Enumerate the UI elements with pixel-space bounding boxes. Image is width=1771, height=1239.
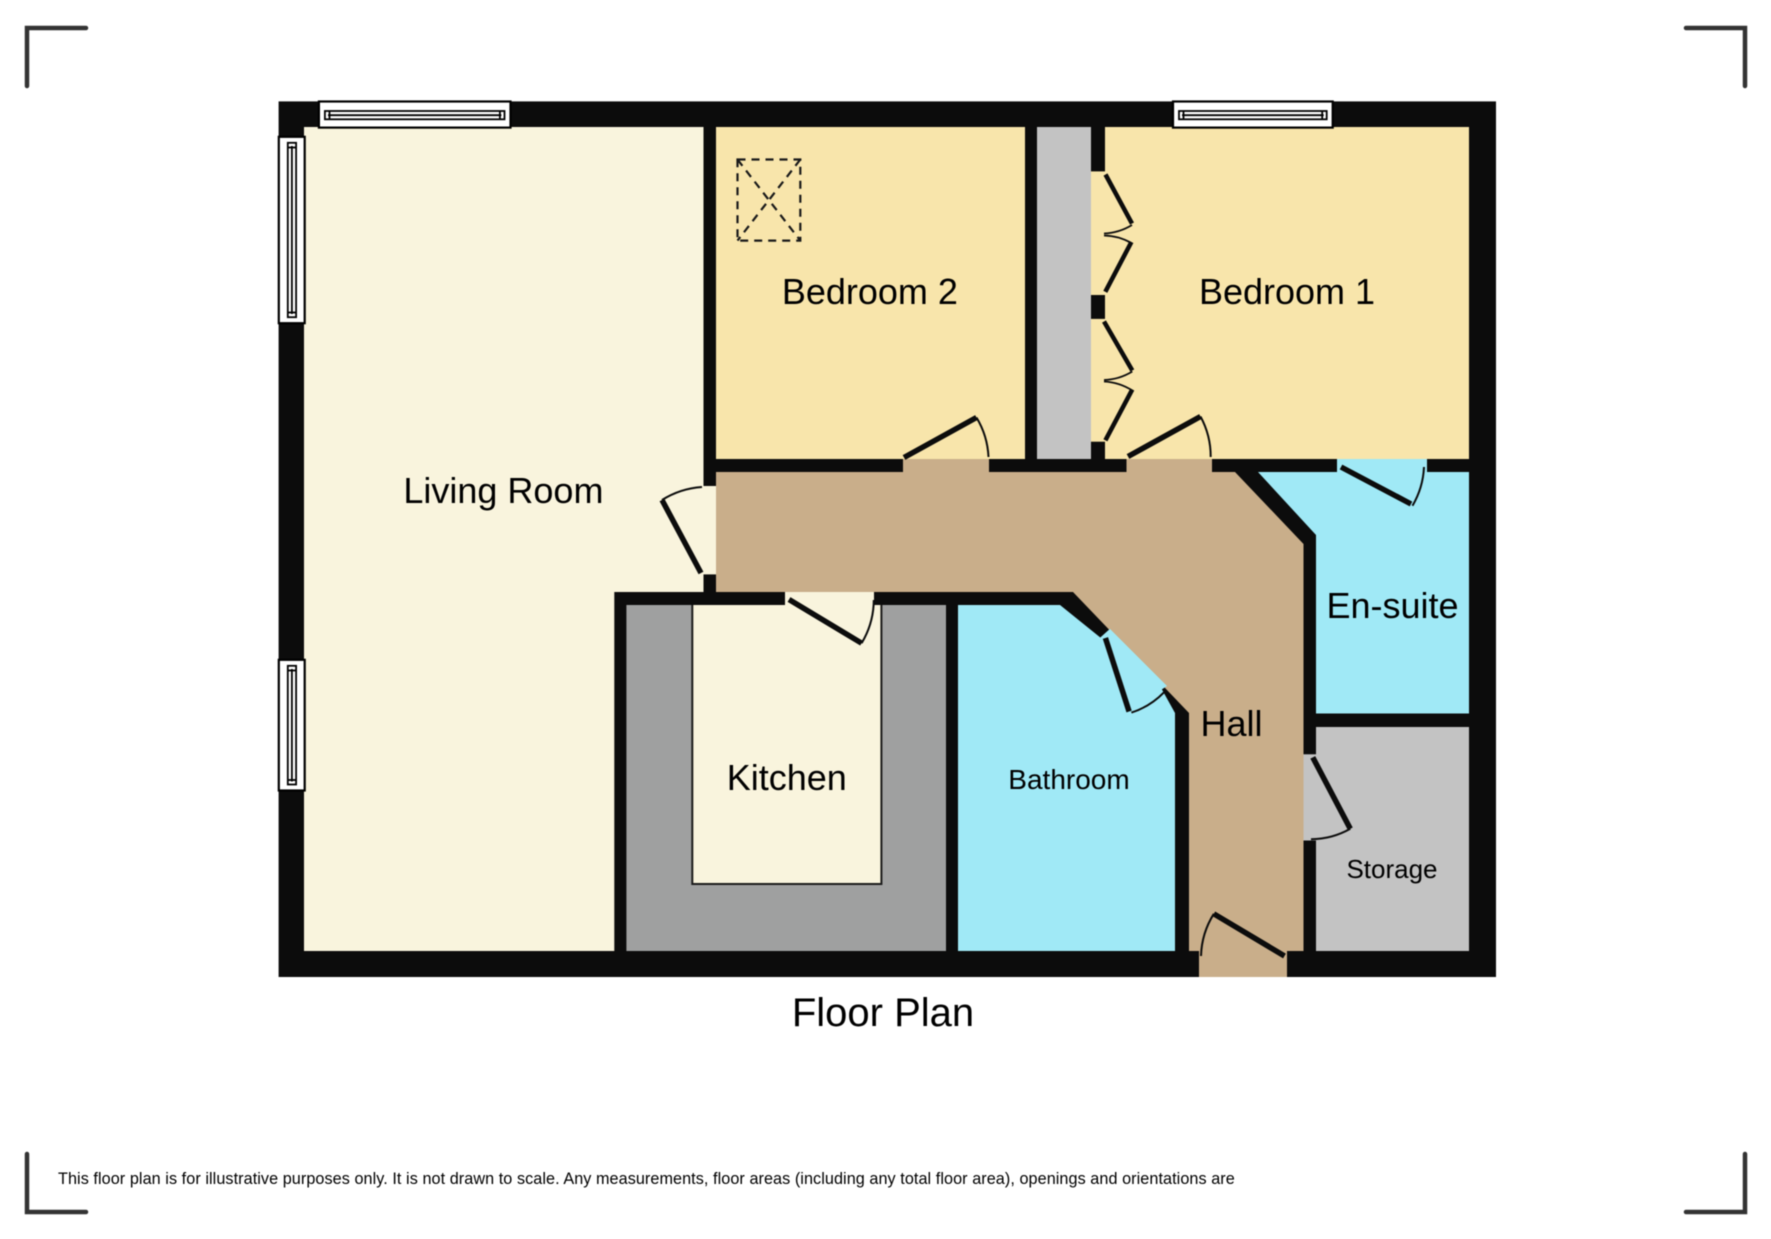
svg-text:Bedroom 2: Bedroom 2 [782,271,958,312]
svg-text:Hall: Hall [1200,703,1262,744]
svg-text:Bathroom: Bathroom [1008,764,1129,795]
svg-text:Bedroom 1: Bedroom 1 [1199,271,1375,312]
svg-text:Storage: Storage [1346,854,1437,884]
svg-text:Floor Plan: Floor Plan [792,991,974,1035]
svg-text:Kitchen: Kitchen [727,757,847,798]
svg-text:En-suite: En-suite [1326,585,1458,626]
svg-text:Living Room: Living Room [403,470,603,511]
svg-text:This floor plan is for illustr: This floor plan is for illustrative purp… [58,1170,1235,1188]
